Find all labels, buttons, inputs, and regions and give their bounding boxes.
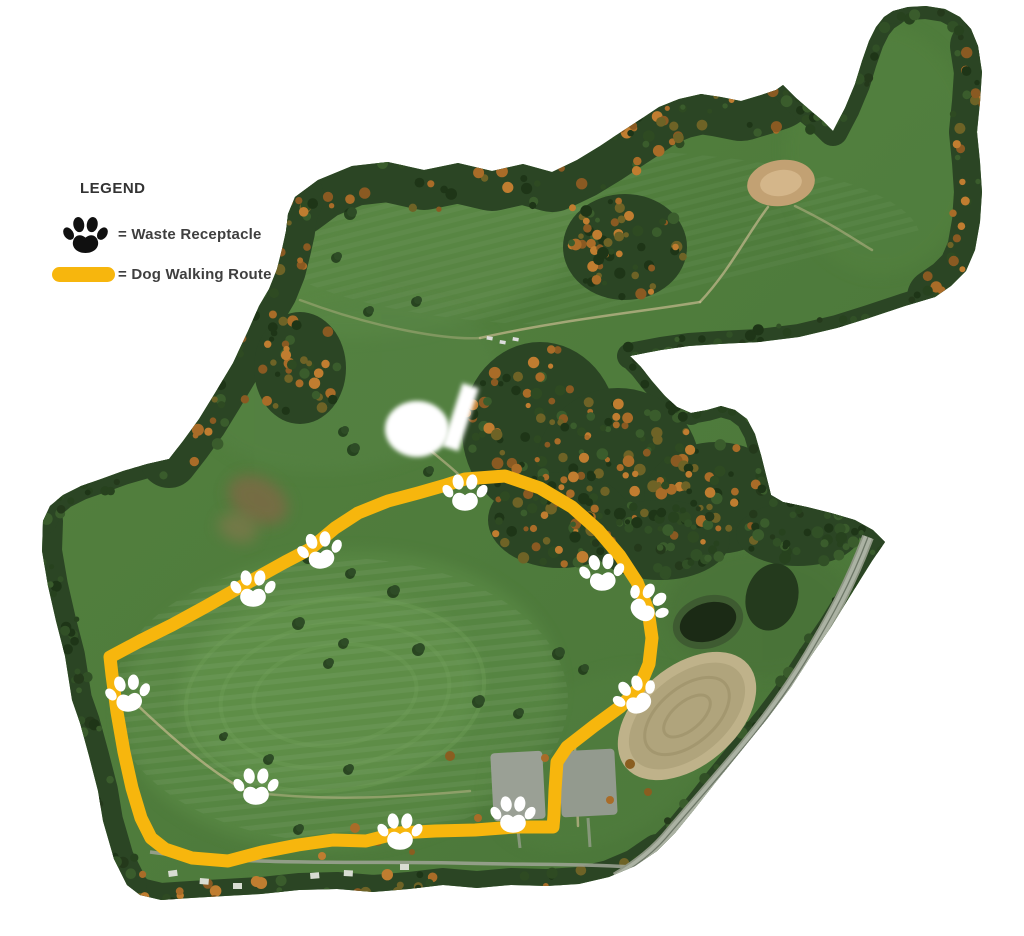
legend-icon-slot bbox=[52, 267, 118, 282]
legend-title: LEGEND bbox=[80, 180, 272, 197]
legend: LEGEND = Waste Receptacle = Dog Walking … bbox=[52, 180, 272, 293]
legend-label-waste: = Waste Receptacle bbox=[118, 226, 262, 243]
legend-label-route: = Dog Walking Route bbox=[118, 266, 272, 283]
white-dome bbox=[385, 401, 449, 457]
legend-icon-slot bbox=[52, 213, 118, 256]
legend-item-waste-receptacle: = Waste Receptacle bbox=[52, 213, 272, 256]
park-map-page: LEGEND = Waste Receptacle = Dog Walking … bbox=[0, 0, 1024, 936]
aerial-map bbox=[0, 0, 1024, 936]
paw-icon bbox=[62, 213, 109, 256]
route-line-swatch bbox=[52, 267, 115, 282]
parking-lot bbox=[558, 749, 617, 818]
legend-item-route: = Dog Walking Route bbox=[52, 266, 272, 283]
